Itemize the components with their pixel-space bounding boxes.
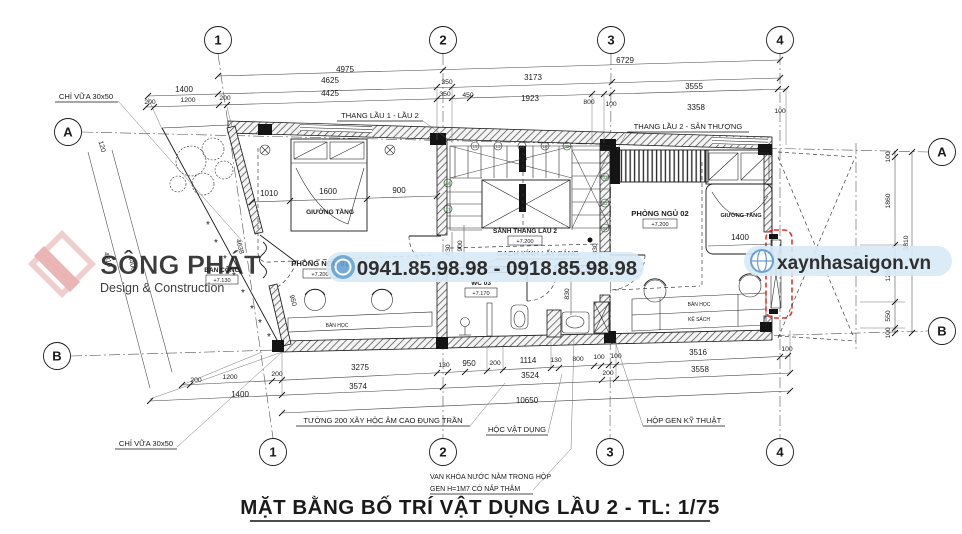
dim: 100 <box>885 327 892 339</box>
dim: 10650 <box>516 396 539 405</box>
duct-box <box>547 310 561 337</box>
svg-text:*: * <box>267 332 271 343</box>
level-badge: +7.200 <box>651 222 668 228</box>
dim: 1114 <box>520 356 537 365</box>
step-number: 16 <box>445 181 451 186</box>
dim: 4625 <box>321 76 339 85</box>
wall-pn01-stair-upper <box>437 139 447 235</box>
step-number: 03 <box>602 175 608 180</box>
desk <box>288 312 432 332</box>
floorplan-svg: SÔNG PHÁT Design & Construction *** *** … <box>0 0 962 534</box>
wc <box>459 302 609 337</box>
dim: 450 <box>462 92 474 99</box>
svg-text:*: * <box>206 220 210 231</box>
dim: 1860 <box>885 193 892 208</box>
dim: 3275 <box>351 363 369 372</box>
partition <box>487 303 492 336</box>
column <box>272 340 284 352</box>
grid-bubble-4: 4 <box>776 33 784 48</box>
wall-left-lower <box>269 284 291 346</box>
grid-bubble-a-right: A <box>937 145 947 160</box>
column <box>758 144 772 155</box>
dim: 200 <box>219 95 231 102</box>
bed <box>706 184 772 254</box>
dim: 900 <box>392 186 406 195</box>
dim: 1200 <box>180 97 195 104</box>
phone-number: 0941.85.98.98 - 0918.85.98.98 <box>357 257 637 280</box>
dim: 3173 <box>524 73 542 82</box>
note-gen-box: HỘP GEN KỸ THUẬT <box>647 416 722 425</box>
column <box>258 124 272 135</box>
level-badge: +7.200 <box>311 272 328 278</box>
dim: 1400 <box>175 85 193 94</box>
dim: 3555 <box>685 82 703 91</box>
bedroom-1 <box>258 139 434 332</box>
dim: 830 <box>564 288 571 300</box>
dim: 100 <box>774 108 786 115</box>
step-number: 13 <box>495 144 501 149</box>
dim: 100 <box>605 101 617 108</box>
dim: 200 <box>489 360 501 367</box>
dim: 100 <box>781 346 793 353</box>
step-number: 01 <box>602 226 608 231</box>
dim: 200 <box>190 377 202 384</box>
note-chi-vua-bottom: CHỈ VỮA 30x50 <box>119 439 173 448</box>
chair <box>644 280 666 302</box>
balcony: *** *** ** <box>162 125 283 351</box>
level-badge: +7.170 <box>472 291 489 297</box>
level-badge: +7.130 <box>213 278 230 284</box>
grid-bubble-b-left: B <box>52 349 61 364</box>
wall-left-upper <box>227 126 263 234</box>
tree-icon <box>215 161 233 179</box>
dim: 1400 <box>231 390 249 399</box>
wall-right-upper <box>764 149 772 232</box>
brand-name: SÔNG PHÁT <box>100 249 261 280</box>
dim: 3516 <box>689 348 707 357</box>
furniture-label-bunkbed-2: GIƯỜNG TẦNG <box>720 211 761 219</box>
svg-text:*: * <box>258 318 262 329</box>
grid-bubble-4b: 4 <box>776 445 784 460</box>
furniture-label-bookshelf: KỆ SÁCH <box>688 315 710 323</box>
dim: 100 <box>593 354 605 361</box>
dim: 130 <box>438 362 450 369</box>
grid-bubble-2: 2 <box>439 33 446 48</box>
dim: 800 <box>572 356 584 363</box>
floorplan-drawing: SÔNG PHÁT Design & Construction *** *** … <box>0 0 962 534</box>
furniture-label-bunkbed-1: GIƯỜNG TẦNG <box>306 206 354 216</box>
dim: 100 <box>885 151 892 163</box>
step-number: 17 <box>445 207 451 212</box>
note-valve-line1: VAN KHÓA NƯỚC NẰM TRONG HỘP <box>430 472 551 481</box>
dim: 1400 <box>731 233 749 242</box>
dim: 1600 <box>319 187 337 196</box>
dim: 3574 <box>349 382 367 391</box>
furniture-label-desk-1: BÀN HỌC <box>326 322 349 329</box>
step-number: 15 <box>472 144 478 149</box>
dim: 3358 <box>687 103 705 112</box>
dim: 3524 <box>521 371 539 380</box>
note-stair-1-2: THANG LẦU 1 - LẦU 2 <box>341 110 419 120</box>
grid-bubble-3: 3 <box>607 33 614 48</box>
room-label-balcony: BAN CÔNG <box>204 265 239 274</box>
note-chi-vua-top: CHỈ VỮA 30x50 <box>59 92 113 101</box>
step-number: 02 <box>602 201 608 206</box>
dim: 6729 <box>616 56 634 65</box>
level-badge: +7.200 <box>516 239 533 245</box>
tree-icon <box>202 138 224 160</box>
dim: 200 <box>602 370 614 377</box>
chair <box>305 290 326 311</box>
note-valve-line2: GEN H=1M7 CÓ NẮP THĂM <box>430 484 520 493</box>
step-numbers: 15 13 11 10 09 16 17 03 02 01 <box>444 142 609 232</box>
dim: 1923 <box>521 94 539 103</box>
dim: 350 <box>439 91 451 98</box>
svg-text:*: * <box>214 238 218 249</box>
bunk-bed <box>291 139 367 231</box>
chair <box>372 290 393 311</box>
dim: 120 <box>97 140 107 153</box>
note-wall-200: TƯỜNG 200 XÂY HỘC ÂM CAO ĐỤNG TRẦN <box>303 415 462 425</box>
dim: 4425 <box>321 89 339 98</box>
dim: 200 <box>144 99 156 106</box>
note-storage-niche: HỘC VẬT DỤNG <box>488 425 546 434</box>
dim: 950 <box>462 359 476 368</box>
watermark-phone: 0941.85.98.98 - 0918.85.98.98 <box>326 252 644 282</box>
dim: 1010 <box>260 189 278 198</box>
page-title: MẶT BẰNG BỐ TRÍ VẬT DỤNG LẦU 2 - TL: 1/7… <box>240 495 719 519</box>
shower-icon <box>461 318 470 327</box>
tree-icon <box>170 176 186 192</box>
grid-bubble-a-left: A <box>63 125 73 140</box>
room-label-sanh: SẢNH THANG LẦU 2 <box>493 225 557 235</box>
step-number: 10 <box>542 144 548 149</box>
watermark-website: xaynhasaigon.vn <box>744 246 952 276</box>
dimension-lines <box>88 57 915 416</box>
grid-bubble-b-right: B <box>937 324 946 339</box>
svg-text:*: * <box>241 288 245 299</box>
step-number: 09 <box>564 144 570 149</box>
column <box>430 133 446 145</box>
drawing-title: MẶT BẰNG BỐ TRÍ VẬT DỤNG LẦU 2 - TL: 1/7… <box>240 495 719 521</box>
grid-bubble-1: 1 <box>214 33 221 48</box>
dim: 800 <box>583 99 595 106</box>
furniture-label-desk-2: BÀN HỌC <box>688 301 711 308</box>
svg-text:*: * <box>223 254 227 265</box>
grid-bubble-1b: 1 <box>269 445 276 460</box>
step-number: 11 <box>520 144 525 149</box>
dim: 3558 <box>691 365 709 374</box>
dim: 900 <box>457 240 464 252</box>
stairs-roof <box>610 147 708 184</box>
dim: 550 <box>885 310 892 322</box>
svg-text:*: * <box>250 304 254 315</box>
dim: 950 <box>288 294 298 307</box>
dim: 130 <box>550 357 562 364</box>
dim: 200 <box>271 371 283 378</box>
column <box>436 337 448 349</box>
tree-icon <box>192 173 214 195</box>
website-url: xaynhasaigon.vn <box>777 253 931 274</box>
note-stair-2-roof: THANG LẦU 2 - SÂN THƯỢNG <box>634 121 743 131</box>
grid-bubble-2b: 2 <box>439 445 446 460</box>
room-label-pn02: PHÒNG NGỦ 02 <box>631 209 688 218</box>
bed-pillows <box>706 150 772 184</box>
dim: 1200 <box>222 374 237 381</box>
grid-bubble-3b: 3 <box>606 445 613 460</box>
dim: 350 <box>441 79 453 86</box>
toilet-icon <box>511 305 528 329</box>
dim: 4975 <box>336 65 354 74</box>
